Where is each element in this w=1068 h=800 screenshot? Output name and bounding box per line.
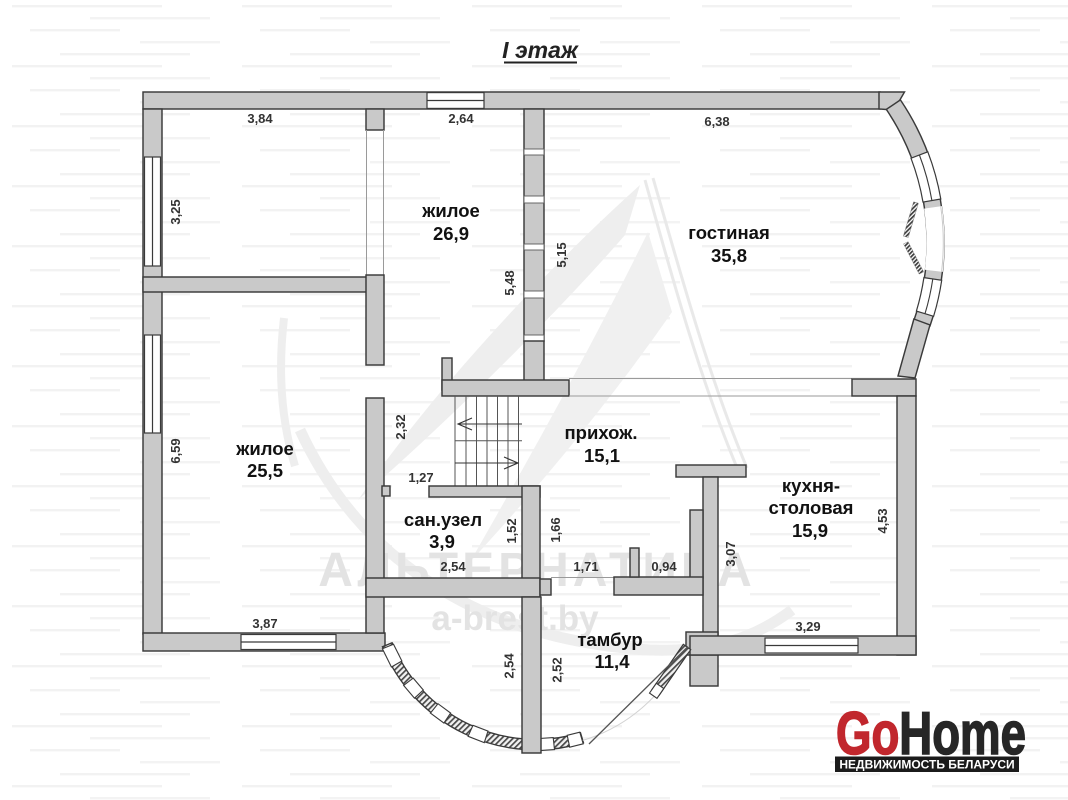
svg-text:кухня-: кухня- xyxy=(782,475,840,496)
svg-text:сан.узел: сан.узел xyxy=(404,509,482,530)
svg-text:столовая: столовая xyxy=(769,497,854,518)
svg-text:26,9: 26,9 xyxy=(433,223,469,244)
svg-text:2,54: 2,54 xyxy=(440,559,466,574)
svg-text:25,5: 25,5 xyxy=(247,460,283,481)
svg-text:a-brest.by: a-brest.by xyxy=(431,599,599,638)
svg-text:6,59: 6,59 xyxy=(168,438,183,463)
svg-text:тамбур: тамбур xyxy=(577,629,642,650)
svg-text:прихож.: прихож. xyxy=(565,422,638,443)
svg-text:3,25: 3,25 xyxy=(168,199,183,224)
svg-text:0,94: 0,94 xyxy=(651,559,677,574)
svg-text:2,64: 2,64 xyxy=(448,111,474,126)
svg-text:2,54: 2,54 xyxy=(502,653,517,679)
svg-text:3,87: 3,87 xyxy=(252,616,277,631)
svg-text:2,52: 2,52 xyxy=(550,657,565,682)
svg-text:4,53: 4,53 xyxy=(875,508,890,533)
svg-text:6,38: 6,38 xyxy=(704,114,729,129)
svg-text:гостиная: гостиная xyxy=(688,222,770,243)
svg-text:3,84: 3,84 xyxy=(247,111,273,126)
svg-text:1,52: 1,52 xyxy=(504,518,519,543)
svg-text:2,32: 2,32 xyxy=(393,414,408,439)
svg-text:5,15: 5,15 xyxy=(554,242,569,267)
svg-text:жилое: жилое xyxy=(421,200,480,221)
svg-text:1,27: 1,27 xyxy=(408,470,433,485)
svg-text:3,9: 3,9 xyxy=(429,531,455,552)
svg-text:1,66: 1,66 xyxy=(548,517,563,542)
svg-text:15,9: 15,9 xyxy=(792,520,828,541)
svg-text:35,8: 35,8 xyxy=(711,245,747,266)
svg-text:НЕДВИЖИМОСТЬ БЕЛАРУСИ: НЕДВИЖИМОСТЬ БЕЛАРУСИ xyxy=(839,758,1014,772)
svg-text:I этаж: I этаж xyxy=(502,37,579,63)
svg-text:жилое: жилое xyxy=(235,438,294,459)
svg-text:11,4: 11,4 xyxy=(595,651,631,672)
svg-text:3,29: 3,29 xyxy=(795,619,820,634)
svg-text:3,07: 3,07 xyxy=(723,541,738,566)
svg-text:15,1: 15,1 xyxy=(584,445,620,466)
svg-text:1,71: 1,71 xyxy=(573,559,598,574)
svg-text:5,48: 5,48 xyxy=(502,270,517,295)
